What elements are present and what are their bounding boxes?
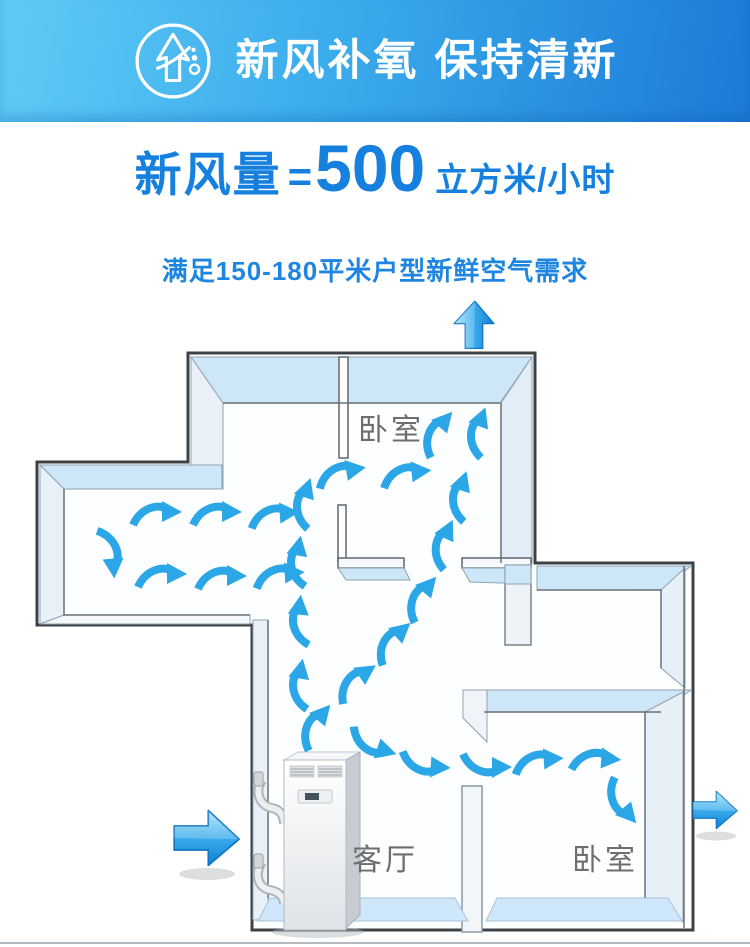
unit-cabinet-front [284,760,346,930]
room-label-bedroom-top: 卧室 [358,414,424,447]
unit-display-screen [305,793,319,800]
room-label-living-room: 客厅 [352,844,418,877]
outflow-arrow-top [454,301,494,348]
wall-duct-connector-top [254,772,263,786]
outflow-arrow-right [693,791,737,829]
page: 新风补氧 保持清新 新风量 = 500 立方米/小时 满足150-180平米户型… [0,0,750,947]
wall-duct-connector-bottom [254,854,263,868]
floorplan-diagram: 卧室 客厅 卧室 [0,0,750,947]
inflow-arrow-left [174,811,239,866]
room-label-bedroom-right: 卧室 [572,844,638,877]
